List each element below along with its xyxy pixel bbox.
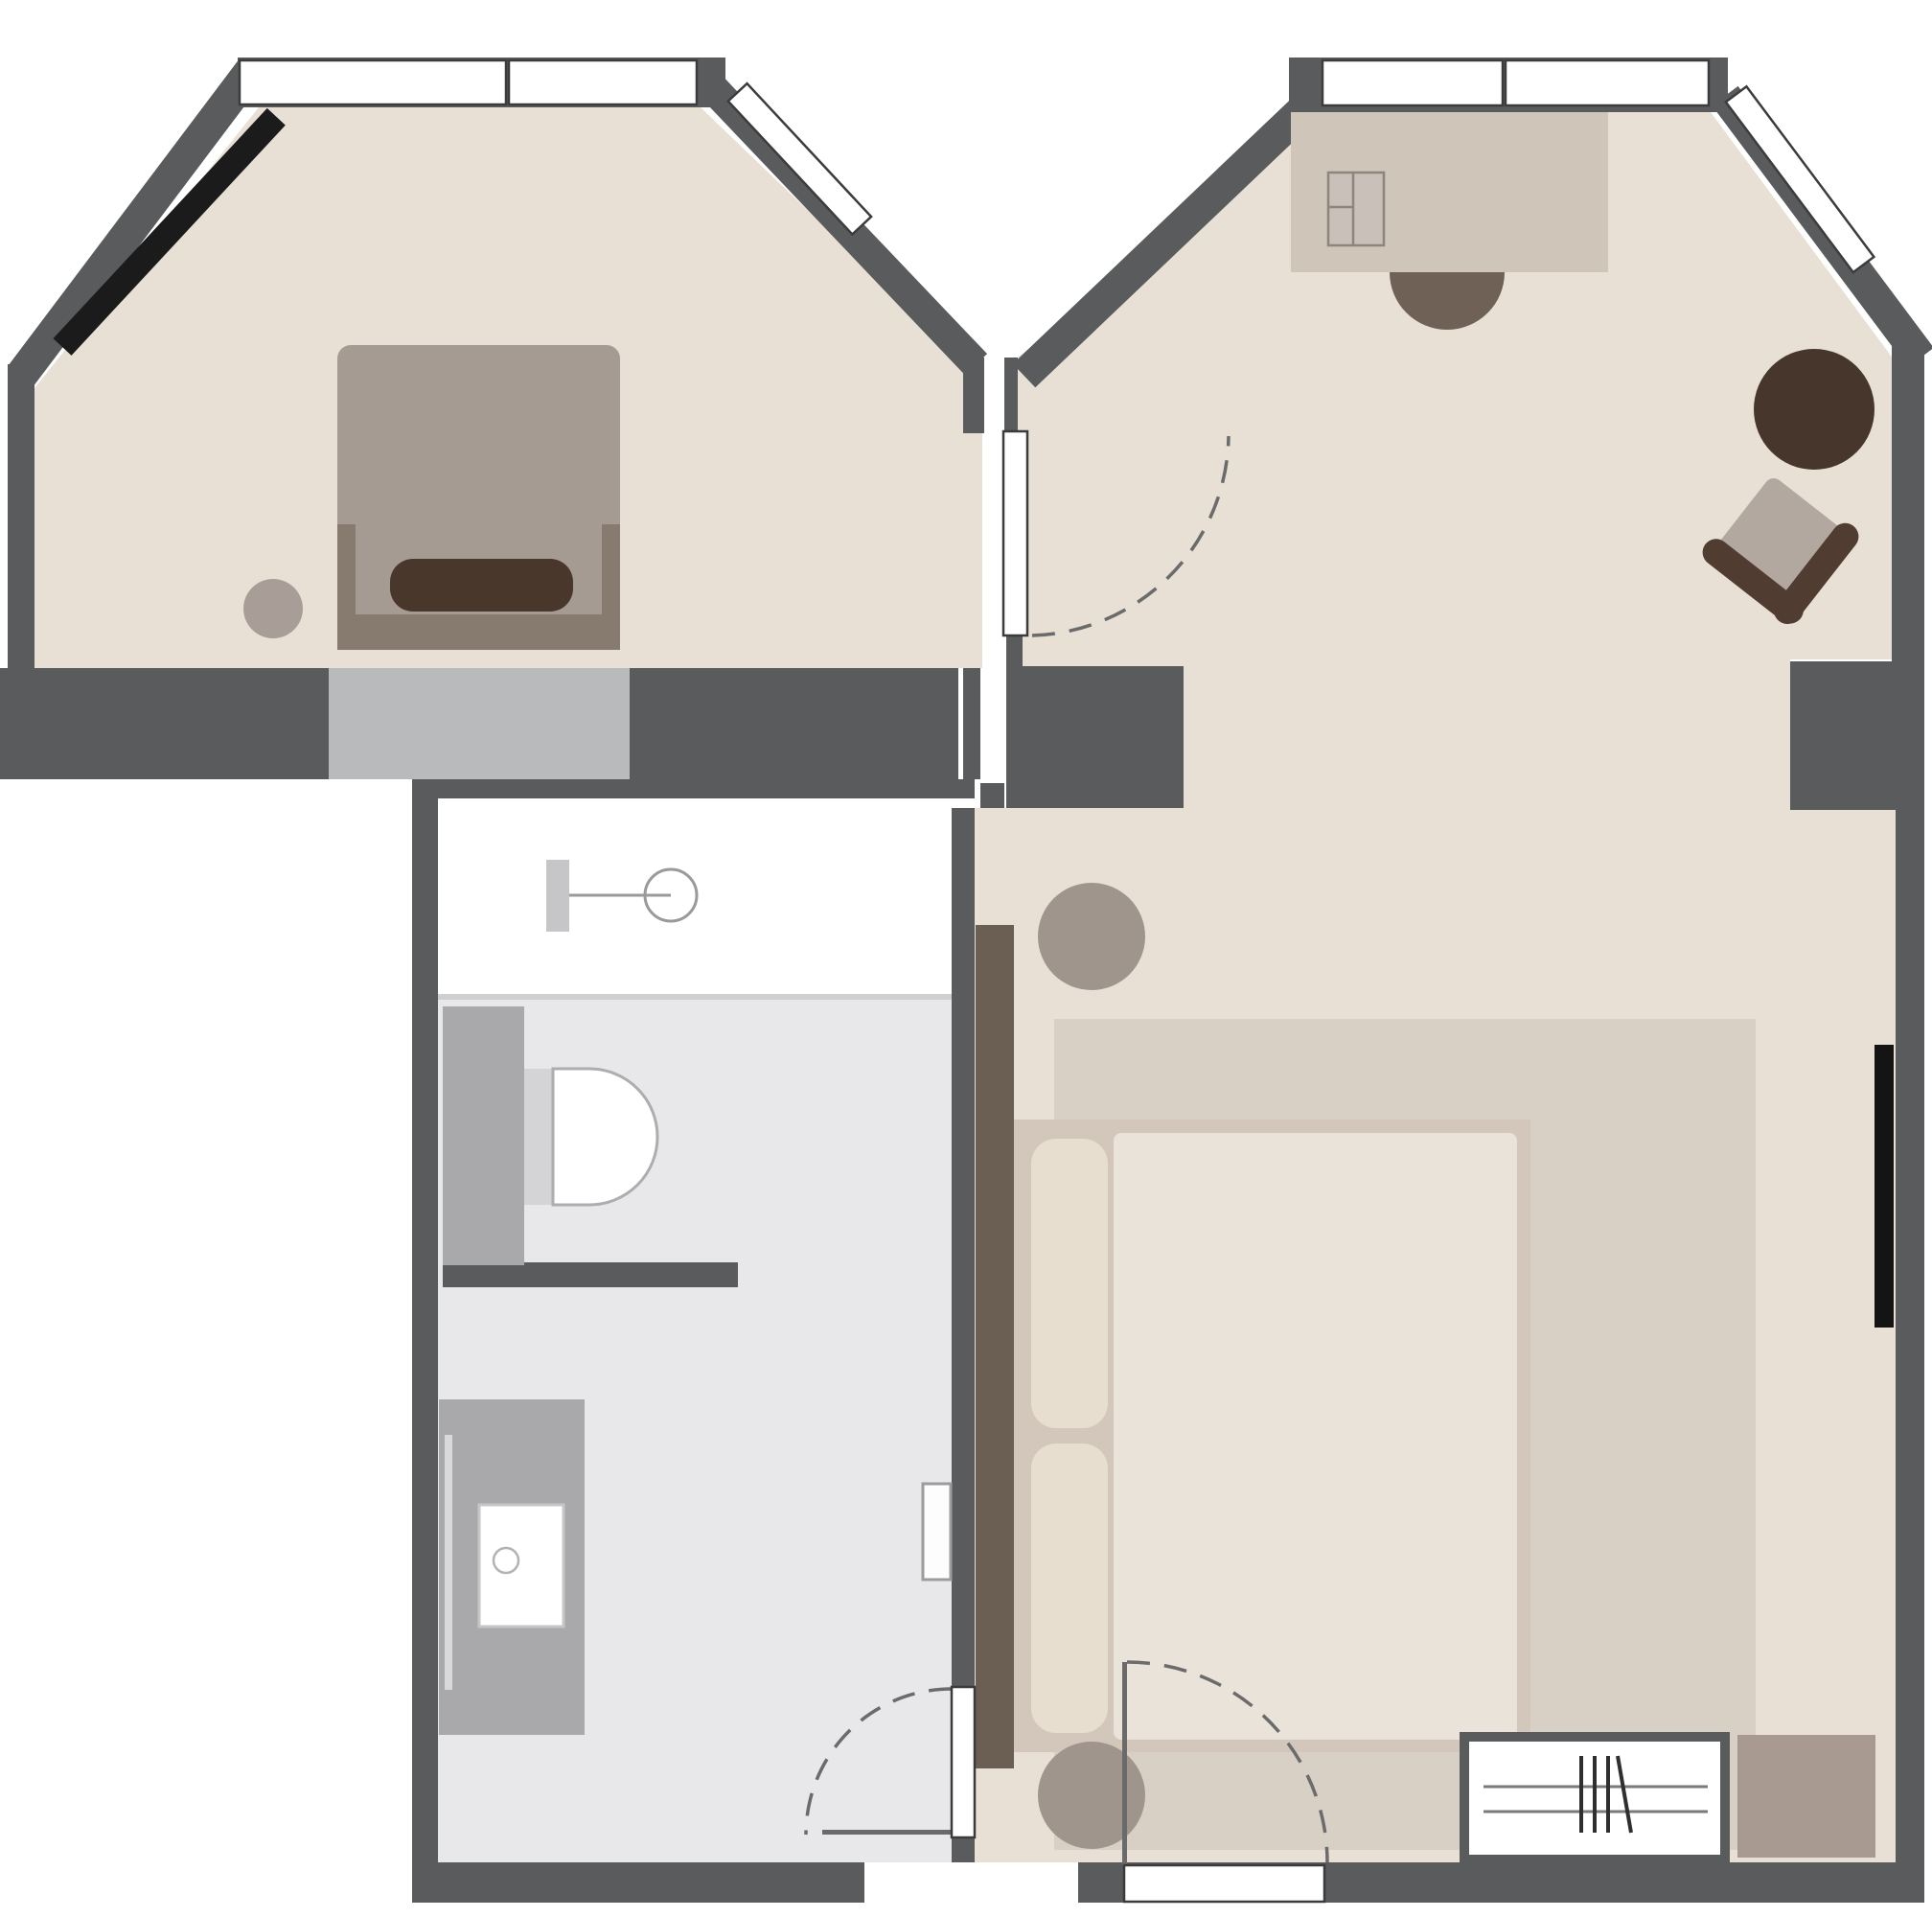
door-bathroom-leaf[interactable] [952, 1687, 975, 1837]
sink-basin [479, 1505, 563, 1627]
door-entry-leaf[interactable] [1124, 1865, 1324, 1902]
wall-bath-partition-stub [443, 1262, 738, 1287]
round-table[interactable] [1754, 349, 1874, 470]
wall-seam [958, 668, 963, 779]
headboard[interactable] [976, 925, 1014, 1768]
wall-lounge-left [8, 364, 34, 671]
tv[interactable] [1874, 1045, 1894, 1328]
dresser[interactable] [1737, 1735, 1875, 1858]
entry-opening [864, 1862, 1078, 1903]
window-study-top-1[interactable] [1322, 60, 1503, 105]
wall-mid-stub-left [1023, 666, 1184, 808]
wall-gap-filler [980, 783, 1004, 808]
door-upper-leaf[interactable] [1003, 431, 1027, 635]
vanity-mirror [445, 1435, 452, 1690]
lounge-chair-cushion[interactable] [390, 559, 573, 612]
closet[interactable] [1464, 1737, 1725, 1859]
laptop[interactable] [1328, 173, 1384, 245]
nightstand-top[interactable] [1038, 883, 1145, 990]
window-lounge-top-1[interactable] [240, 60, 506, 104]
toilet-tank [524, 1069, 553, 1205]
vanity[interactable] [439, 1399, 585, 1735]
pillow-top [1031, 1139, 1108, 1428]
wall-door-jamb [1006, 635, 1023, 808]
towel-rail[interactable] [923, 1484, 951, 1580]
door-entry-open-line [1122, 1662, 1127, 1865]
sink-drain [494, 1548, 518, 1573]
wall-bath-left [412, 779, 438, 1888]
floor-plan [0, 0, 1932, 1917]
wall-bath-top [412, 779, 975, 798]
wall-right-lower [1896, 810, 1924, 1903]
wall-right-upper [1892, 345, 1924, 673]
wall-lounge-right-stub [963, 358, 984, 433]
duvet [1114, 1133, 1517, 1740]
toilet-console [443, 1006, 524, 1265]
lounge-closet-opening [329, 668, 630, 779]
window-study-top-2[interactable] [1506, 60, 1709, 105]
lounge-chair-footboard [337, 614, 620, 650]
nightstand-bottom[interactable] [1038, 1742, 1145, 1849]
bathroom-floor-seam [438, 994, 952, 1000]
stool[interactable] [243, 579, 303, 638]
pillow-bottom [1031, 1444, 1108, 1733]
window-lounge-top-2[interactable] [509, 60, 697, 104]
wall-mid-stub-right [1790, 661, 1924, 810]
door-bathroom-open-line [822, 1830, 952, 1835]
wall-study-left-stub [1004, 358, 1018, 433]
